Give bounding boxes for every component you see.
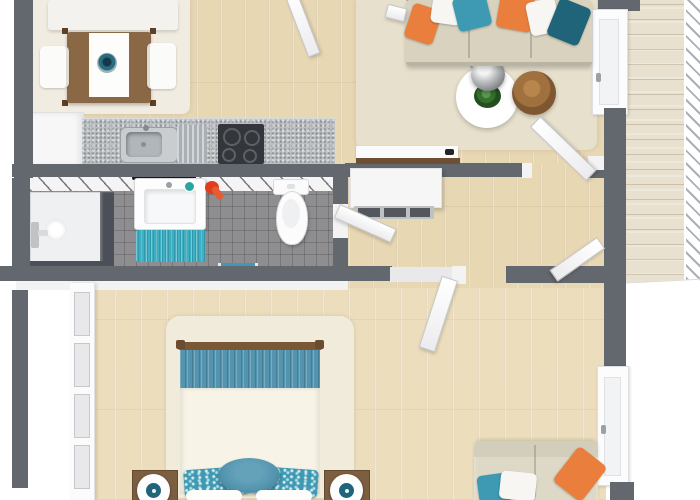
burner [223, 128, 241, 146]
shower-handle [38, 230, 48, 236]
sink-faucet [143, 125, 149, 131]
lamp-finial [152, 489, 156, 493]
shelf-slot [410, 208, 430, 217]
bed-pillow-white [186, 490, 242, 500]
bed-post [176, 340, 185, 349]
toilet-flush-button [287, 184, 295, 189]
wardrobe-panel [74, 292, 90, 336]
wall-bath-hall-lower [333, 238, 348, 266]
shower-drain [45, 219, 67, 241]
bed-post [315, 340, 324, 349]
balcony-door [592, 9, 628, 115]
sink-drainboard [177, 125, 207, 163]
soap-dish [184, 181, 195, 192]
vanity-basin [144, 189, 196, 224]
bed-round-cushion [218, 458, 280, 493]
table-foot [150, 100, 156, 106]
burner [243, 149, 257, 163]
wardrobe-panel [74, 343, 90, 387]
toilet-seat [282, 199, 300, 228]
dining-chair-left [40, 46, 69, 88]
lamp-finial [345, 489, 349, 493]
bed-pillow-white [256, 490, 312, 500]
bedroom-window-panel [604, 377, 621, 476]
cooktop [218, 124, 264, 164]
dining-chair-right [147, 43, 176, 89]
pillow-white [499, 470, 538, 500]
balcony-door-handle [596, 73, 601, 82]
balcony-door-panel [599, 19, 619, 105]
wall-left-bedroom [12, 290, 28, 488]
floor-plan [0, 0, 700, 500]
vanity-sink [134, 178, 206, 230]
wall-left-bath [12, 178, 30, 266]
balcony-railing [684, 0, 700, 292]
wall-bath-hall-upper [333, 177, 348, 204]
sink-drain [141, 142, 146, 147]
wall-right [604, 108, 626, 370]
hall-sideboard [350, 168, 442, 208]
wardrobe [70, 283, 95, 500]
table-foot [150, 28, 156, 34]
side-table [512, 71, 556, 115]
toilet-bowl [276, 191, 308, 245]
door-jamb [522, 163, 532, 178]
bedroom-window-handle [601, 425, 606, 434]
wall-bath-bedroom-face [16, 281, 348, 290]
remote-control [445, 149, 454, 155]
wardrobe-panel [74, 394, 90, 438]
shower-glass-panel [100, 192, 114, 268]
burner [244, 130, 260, 146]
bath-mat [136, 230, 206, 262]
table-lamp-left [137, 474, 170, 500]
shelf-slot [384, 208, 406, 217]
wall-hall-bedroom-left [348, 266, 392, 281]
table-lamp-right [330, 474, 363, 500]
media-console-wood-edge [356, 158, 460, 164]
bed-foot-rail [178, 342, 322, 350]
wall-left-top [14, 0, 33, 178]
wardrobe-panel [74, 445, 90, 489]
wall-kitchen-bath [12, 164, 348, 177]
wall-bottom-right [610, 482, 634, 500]
dining-bench [48, 0, 178, 30]
kitchen-sink [120, 127, 178, 163]
centerpiece-bowl [97, 53, 117, 73]
balcony-deck [620, 0, 686, 290]
kitchen-cabinet [30, 112, 84, 166]
wall-bath-bedroom [0, 266, 348, 281]
vanity-faucet [166, 182, 172, 188]
bed-runner [180, 350, 320, 388]
burner [222, 148, 236, 162]
double-bed [176, 340, 324, 500]
